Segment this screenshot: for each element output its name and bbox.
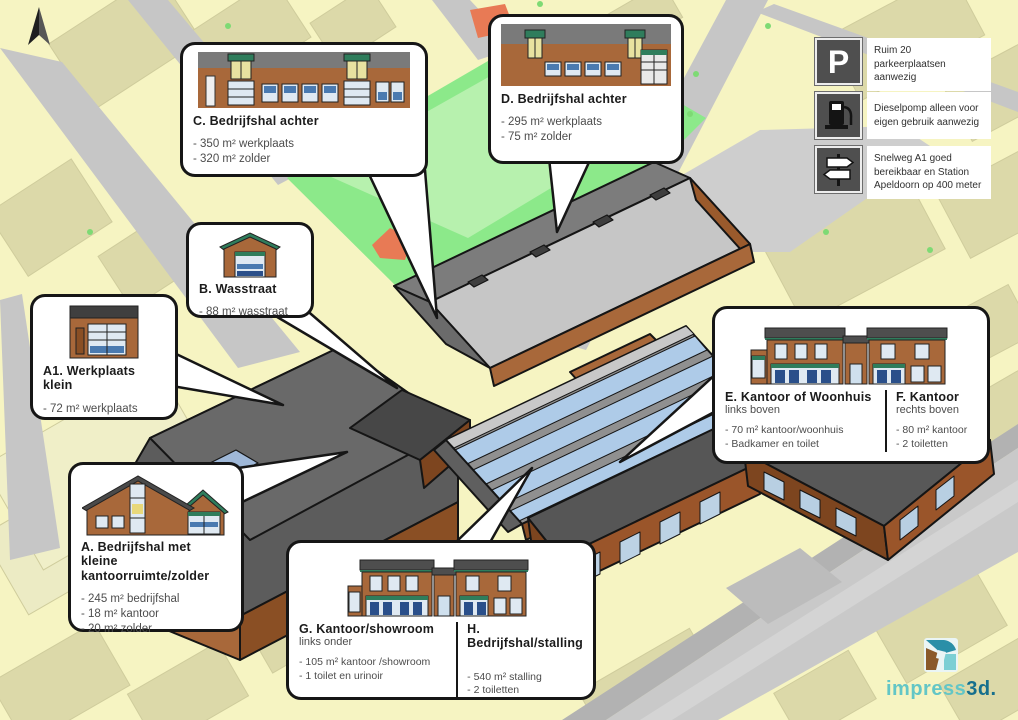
callout-e-line: - Badkamer en toilet [725,438,877,452]
building-b-illustration [219,232,281,278]
callout-gh: G. Kantoor/showroom links onder - 105 m²… [286,540,596,700]
callout-h-line: - 540 m² stalling [467,671,583,685]
site-plan-canvas: C. Bedrijfshal achter - 350 m² werkplaat… [0,0,1018,720]
infobox-highway-text: Snelweg A1 goed bereikbaar en Station Ap… [867,146,991,199]
callout-a-line: - 18 m² kantoor [81,607,231,622]
infobox-diesel-text: Dieselpomp alleen voor eigen gebruik aan… [867,92,991,139]
callout-c-line: - 320 m² zolder [193,152,415,167]
callout-a-line: - 20 m² zolder [81,622,231,637]
building-a1-illustration [66,304,142,360]
callout-b-title: B. Wasstraat [199,282,301,296]
building-ef-illustration [749,316,953,386]
callout-e-subtitle: links boven [725,404,877,417]
callout-ef-right: F. Kantoor rechts boven - 80 m² kantoor … [885,390,977,452]
building-d-illustration [501,24,671,88]
callout-f-title: F. Kantoor [896,390,977,404]
infobox-diesel: Dieselpomp alleen voor eigen gebruik aan… [815,92,991,139]
callout-e-title: E. Kantoor of Woonhuis [725,390,877,404]
callout-a1: A1. Werkplaats klein - 72 m² werkplaats [30,294,178,420]
callout-a1-line: - 72 m² werkplaats [43,402,165,417]
callout-g-line: - 105 m² kantoor /showroom [299,656,448,670]
infobox-parking-text: Ruim 20 parkeerplaatsen aanwezig [867,38,991,91]
callout-h-title: H. Bedrijfshal/stalling [467,622,583,651]
callout-ef-left: E. Kantoor of Woonhuis links boven - 70 … [725,390,885,452]
callout-a-line: - 245 m² bedrijfshal [81,592,231,607]
fuel-pump-icon [815,92,862,139]
callout-d: D. Bedrijfshal achter - 295 m² werkplaat… [488,14,684,164]
building-a-illustration [82,472,230,536]
callout-f-line: - 2 toiletten [896,438,977,452]
parking-letter: P [828,46,849,78]
logo-impress: impress [886,678,966,700]
building-gh-illustration [346,550,536,618]
callout-d-line: - 295 m² werkplaats [501,115,671,130]
callout-d-title: D. Bedrijfshal achter [501,92,671,106]
signpost-icon [815,146,862,193]
callout-b-line: - 88 m² wasstraat [199,305,301,320]
callout-b: B. Wasstraat - 88 m² wasstraat [186,222,314,318]
callout-a: A. Bedrijfshal met kleine kantoorruimte/… [68,462,244,632]
callout-e-line: - 70 m² kantoor/woonhuis [725,424,877,438]
building-c-illustration [198,52,410,110]
callout-gh-right: H. Bedrijfshal/stalling - 540 m² stallin… [456,622,583,698]
callout-a1-title: A1. Werkplaats klein [43,364,165,393]
infobox-highway: Snelweg A1 goed bereikbaar en Station Ap… [815,146,991,199]
impress3d-logo-text: impress3d. [886,679,996,699]
north-arrow-icon [24,5,54,54]
callout-h-subtitle [467,651,583,664]
callout-ef: E. Kantoor of Woonhuis links boven - 70 … [712,306,990,464]
callout-g-line: - 1 toilet en urinoir [299,670,448,684]
callout-gh-left: G. Kantoor/showroom links onder - 105 m²… [299,622,456,698]
callout-c-line: - 350 m² werkplaats [193,137,415,152]
callout-h-line: - 2 toiletten [467,684,583,698]
impress3d-logo-icon [924,638,958,672]
callout-c-title: C. Bedrijfshal achter [193,114,415,128]
impress3d-logo: impress3d. [886,638,996,699]
callout-a-title: A. Bedrijfshal met kleine kantoorruimte/… [81,540,231,583]
callout-f-line: - 80 m² kantoor [896,424,977,438]
callout-c: C. Bedrijfshal achter - 350 m² werkplaat… [180,42,428,177]
callout-g-title: G. Kantoor/showroom [299,622,448,636]
callout-d-line: - 75 m² zolder [501,130,671,145]
parking-icon: P [815,38,862,85]
infobox-parking: P Ruim 20 parkeerplaatsen aanwezig [815,38,991,91]
callout-g-subtitle: links onder [299,636,448,649]
logo-3d: 3d. [966,678,996,700]
callout-f-subtitle: rechts boven [896,404,977,417]
